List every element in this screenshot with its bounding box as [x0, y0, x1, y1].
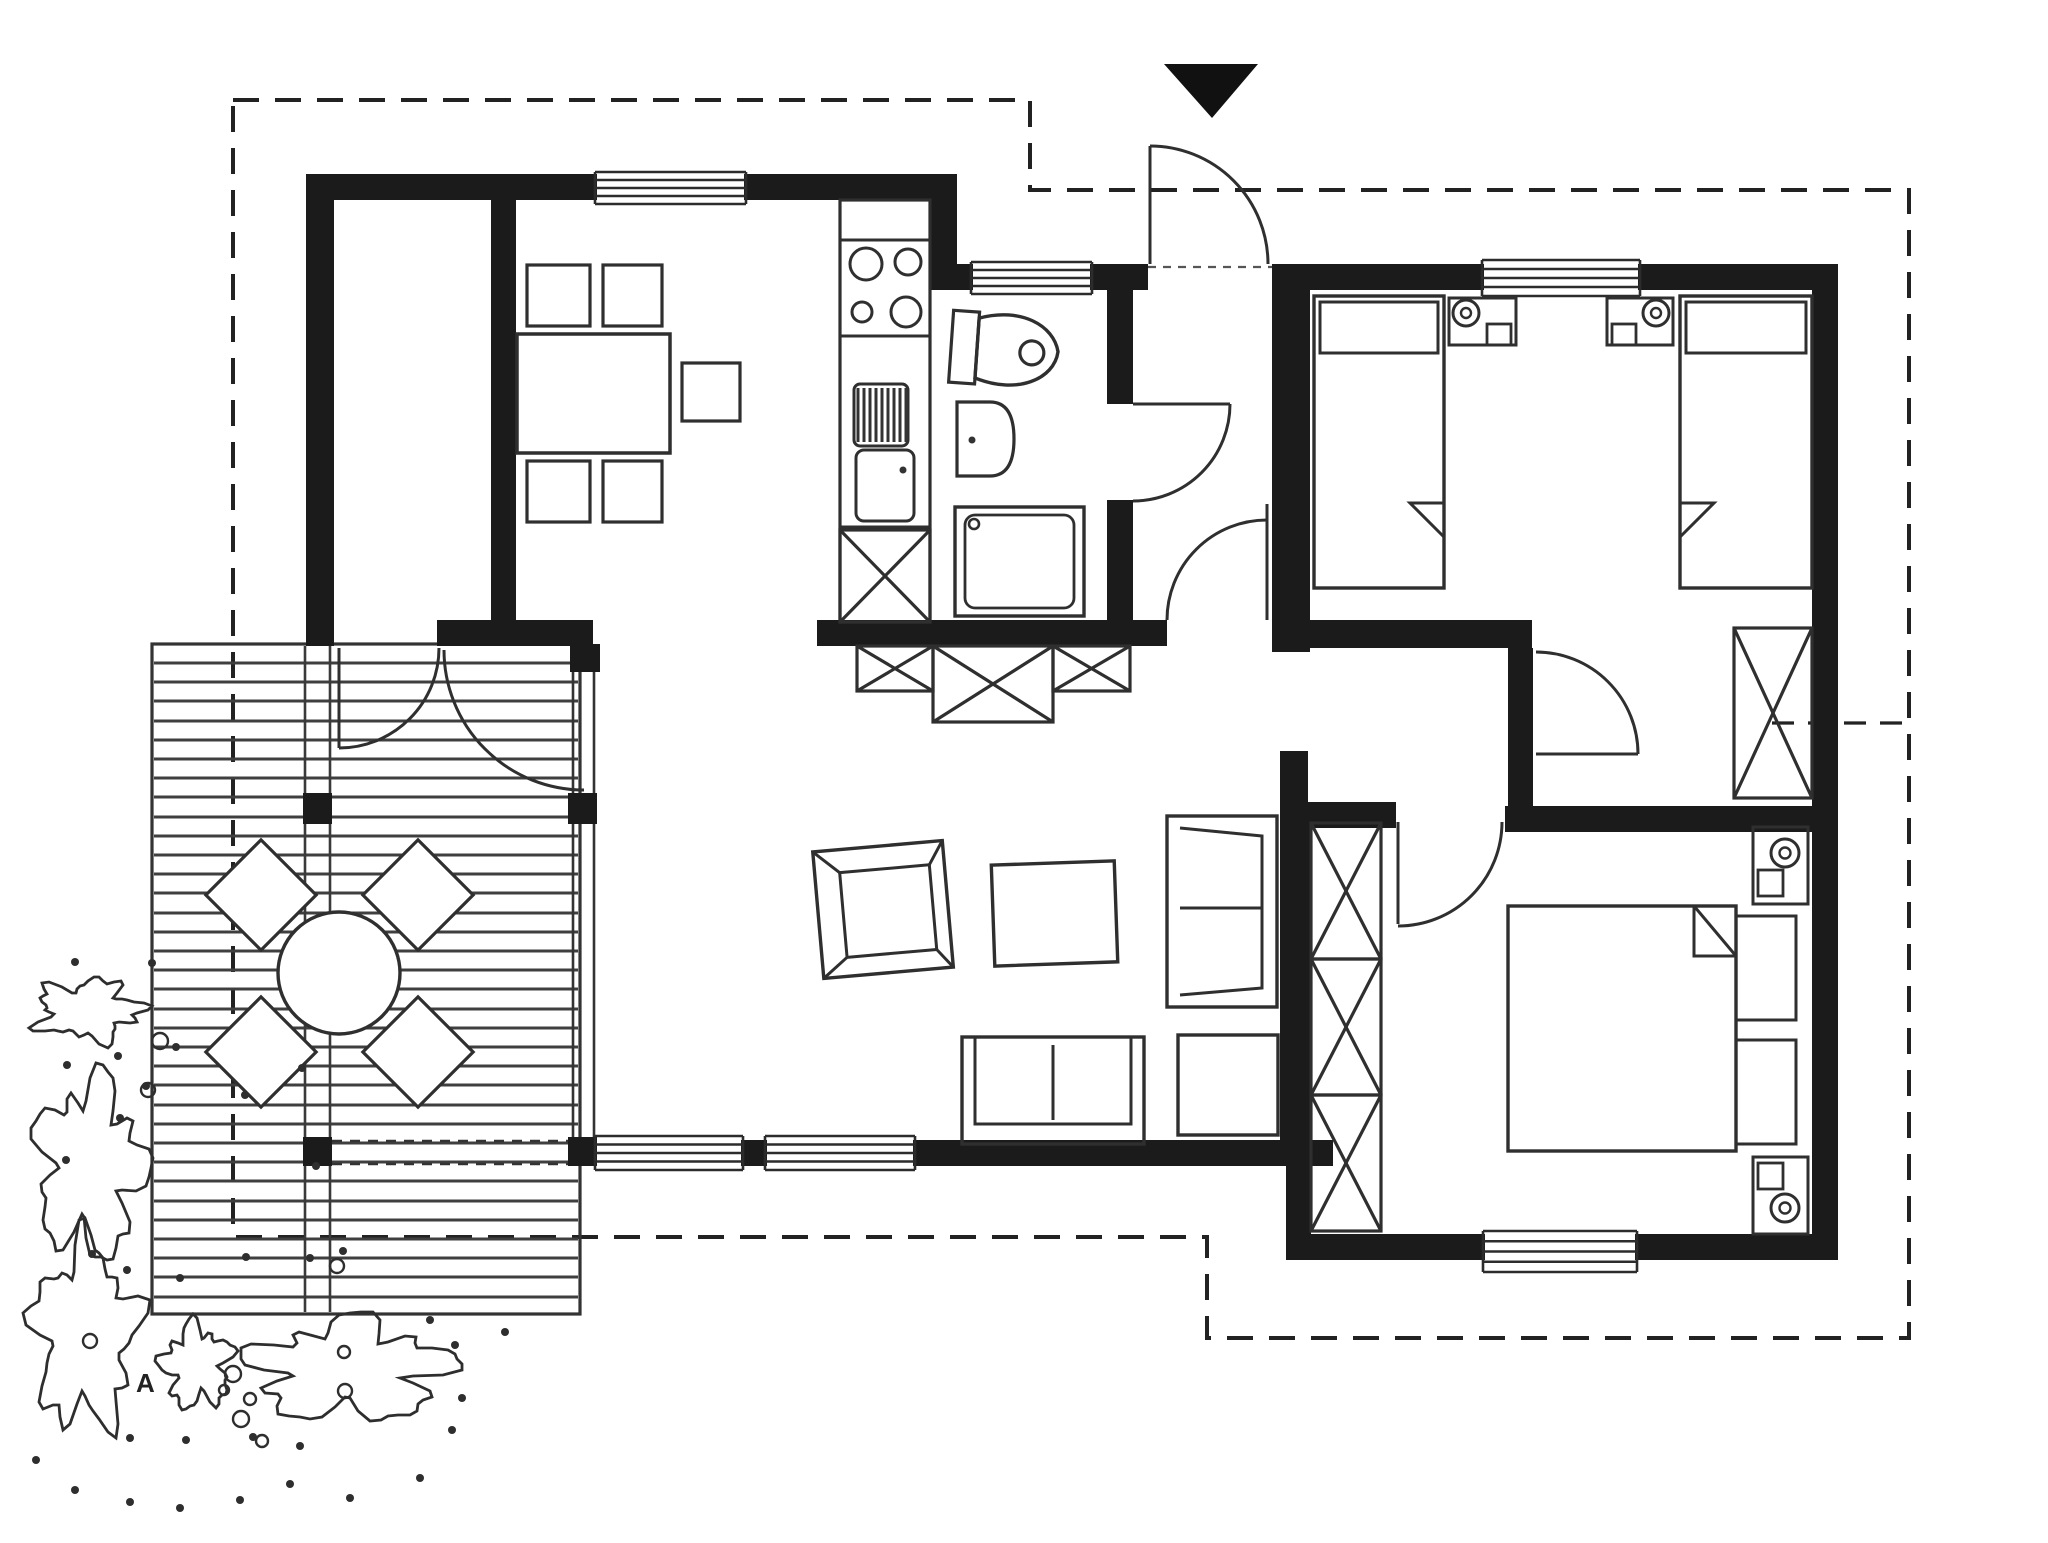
svg-text:A: A	[136, 1368, 155, 1398]
